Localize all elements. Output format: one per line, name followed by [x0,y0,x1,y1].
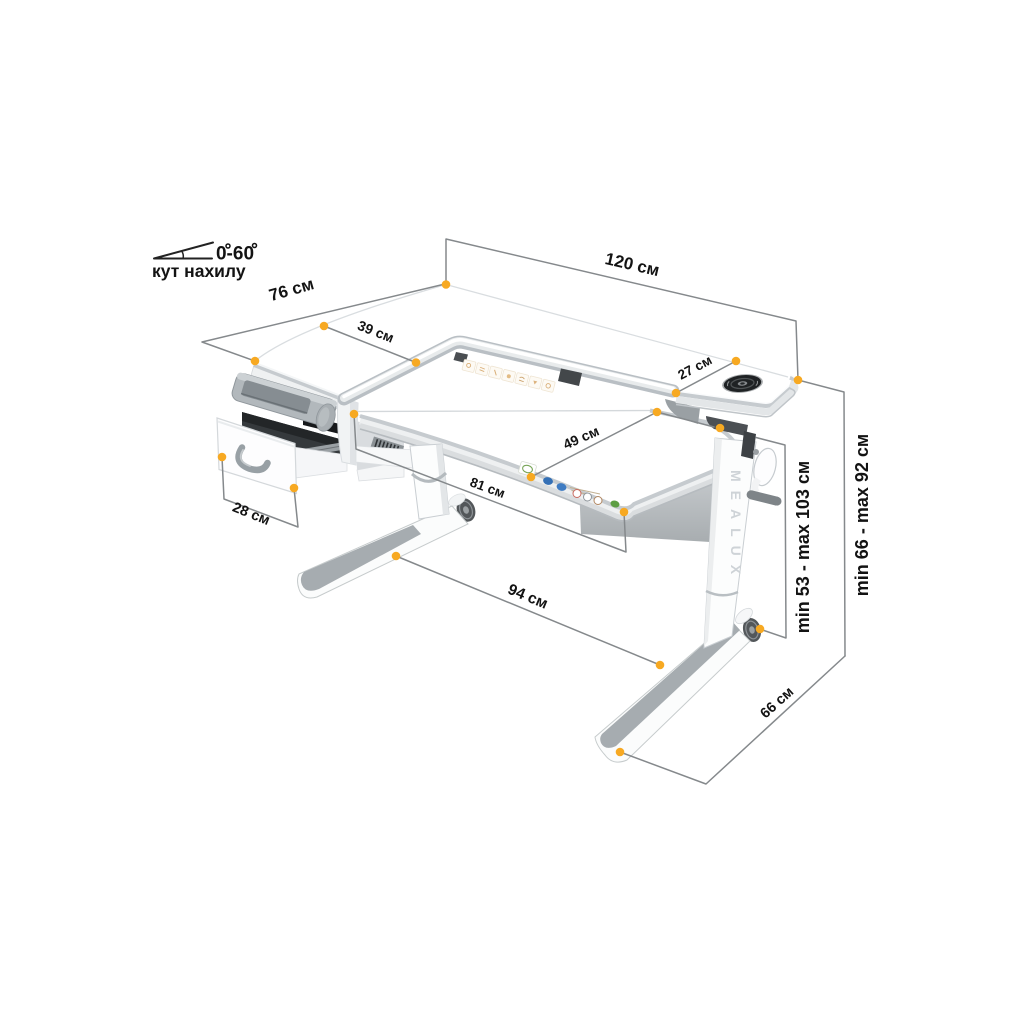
svg-text:min 53 - max 103 см: min 53 - max 103 см [793,461,813,633]
svg-text:кут нахилу: кут нахилу [152,261,246,281]
svg-text:76 см: 76 см [267,274,316,305]
svg-text:66 см: 66 см [757,684,797,722]
svg-text:min 66 - max 92 см: min 66 - max 92 см [852,434,872,596]
svg-text:81 см: 81 см [468,475,507,502]
svg-text:120 см: 120 см [603,249,661,280]
svg-text:MEALUX: MEALUX [728,470,744,583]
svg-text:28 см: 28 см [230,500,272,529]
svg-text:94 см: 94 см [505,581,550,613]
